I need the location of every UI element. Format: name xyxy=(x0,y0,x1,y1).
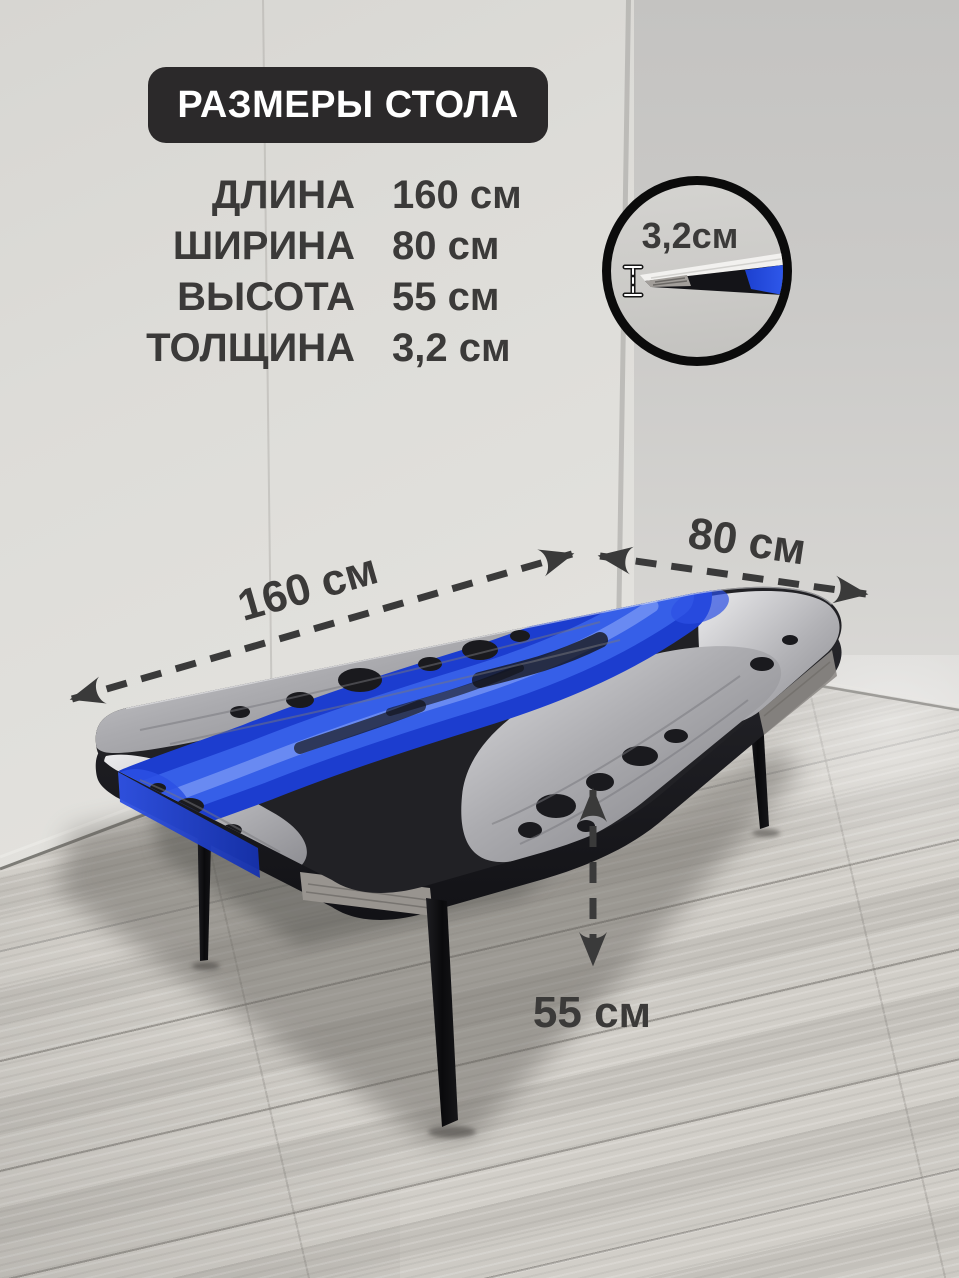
spec-row-length: ДЛИНА 160 см xyxy=(0,170,959,221)
spec-value: 80 см xyxy=(392,221,499,272)
spec-label: ТОЛЩИНА xyxy=(0,323,355,374)
thickness-inset-circle: 3,2см xyxy=(602,176,792,366)
thickness-annotation: 3,2см xyxy=(604,215,776,257)
spec-value: 160 см xyxy=(392,170,522,221)
spec-label: ВЫСОТА xyxy=(0,272,355,323)
height-annotation: 55 см xyxy=(502,986,682,1040)
thickness-measure-icon xyxy=(625,267,641,295)
spec-row-width: ШИРИНА 80 см xyxy=(0,221,959,272)
title-badge: РАЗМЕРЫ СТОЛА xyxy=(148,67,548,143)
spec-row-thickness: ТОЛЩИНА 3,2 см xyxy=(0,323,959,374)
page-title: РАЗМЕРЫ СТОЛА xyxy=(177,84,518,127)
dimension-list: ДЛИНА 160 см ШИРИНА 80 см ВЫСОТА 55 см Т… xyxy=(0,170,959,374)
spec-value: 3,2 см xyxy=(392,323,511,374)
product-image: 160 см 80 см 55 см РАЗМЕРЫ СТОЛА ДЛИНА 1… xyxy=(0,0,959,1278)
spec-row-height: ВЫСОТА 55 см xyxy=(0,272,959,323)
spec-label: ДЛИНА xyxy=(0,170,355,221)
spec-label: ШИРИНА xyxy=(0,221,355,272)
spec-value: 55 см xyxy=(392,272,499,323)
edge-closeup xyxy=(611,185,783,357)
